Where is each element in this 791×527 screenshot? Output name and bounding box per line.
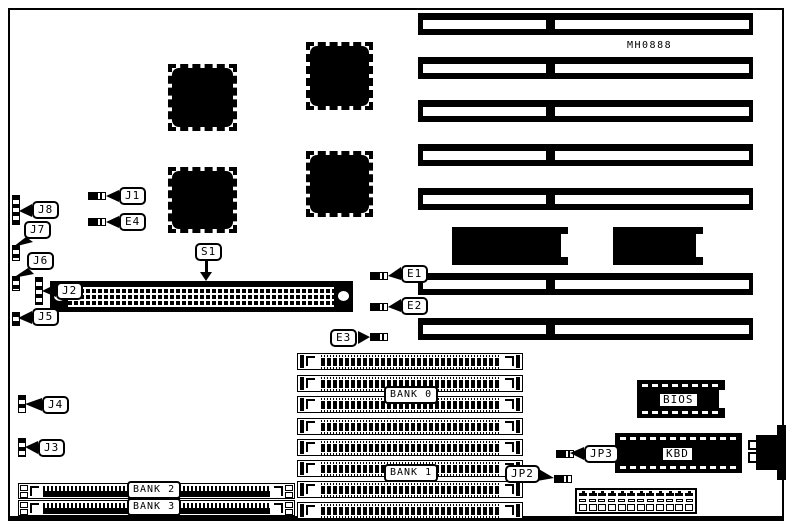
jumper-jp3 [556,450,574,458]
qfp-chip-3 [168,167,237,233]
power-pin-row [579,491,693,496]
label-bank2: BANK 2 [127,481,181,499]
label-jp2: JP2 [505,465,540,483]
label-e4: E4 [119,213,146,231]
keyboard-din-bracket [777,425,786,480]
s1-connector [50,281,353,312]
jumper-j1 [88,192,106,200]
label-jp3: JP3 [584,445,619,463]
s1-pin-grid [68,287,334,307]
isa-slot-4 [418,144,753,166]
label-bank3: BANK 3 [127,498,181,516]
chip-notch [719,390,725,408]
simm-socket-4 [297,418,523,435]
label-e2: E2 [401,297,428,315]
chip-notch [696,234,703,257]
pin-header-j7 [12,245,20,261]
label-j2: J2 [56,282,83,300]
simm-socket-8 [297,502,523,519]
motherboard-diagram: MH0888 [0,0,791,527]
label-j6: J6 [27,252,54,270]
pin-header-j3 [18,438,26,457]
isa-slot-1 [418,13,753,35]
label-j4: J4 [42,396,69,414]
label-j7: J7 [24,221,51,239]
isa-slot-6 [418,273,753,295]
power-socket-row [579,504,693,511]
jumper-e2 [370,303,388,311]
jumper-e1 [370,272,388,280]
pin-header-j5 [12,312,20,326]
label-bios: BIOS [658,392,699,408]
power-contact-row [579,499,693,502]
label-e3: E3 [330,329,357,347]
qfp-chip-4 [306,151,373,217]
jumper-e4 [88,218,106,226]
jumper-e3 [370,333,388,341]
isa-slot-7 [418,318,753,340]
mounting-hole-right [338,291,349,301]
jumper-jp2 [554,475,572,483]
label-s1: S1 [195,243,222,261]
rom-chip-2 [613,227,703,265]
label-bank1: BANK 1 [384,464,438,482]
label-j8: J8 [32,201,59,219]
simm-socket-7 [297,481,523,498]
qfp-chip-1 [168,64,237,131]
label-j1: J1 [119,187,146,205]
power-connector [575,488,697,514]
qfp-chip-2 [306,42,373,110]
label-bank0: BANK 0 [384,386,438,404]
label-e1: E1 [401,265,428,283]
chip-notch [561,234,568,257]
isa-slot-2 [418,57,753,79]
label-kbd: KBD [661,446,694,462]
keyboard-din-connector [756,435,779,470]
pin-header-j2 [35,277,43,305]
simm-socket-5 [297,439,523,456]
rom-chip-1 [452,227,568,265]
isa-slot-3 [418,100,753,122]
isa-slot-5 [418,188,753,210]
label-j3: J3 [38,439,65,457]
label-j5: J5 [32,308,59,326]
pin-header-j4 [18,395,26,413]
simm-socket-1 [297,353,523,370]
pin-header-j6 [12,276,20,291]
model-number: MH0888 [627,40,672,51]
pin-header-j8 [12,195,20,225]
